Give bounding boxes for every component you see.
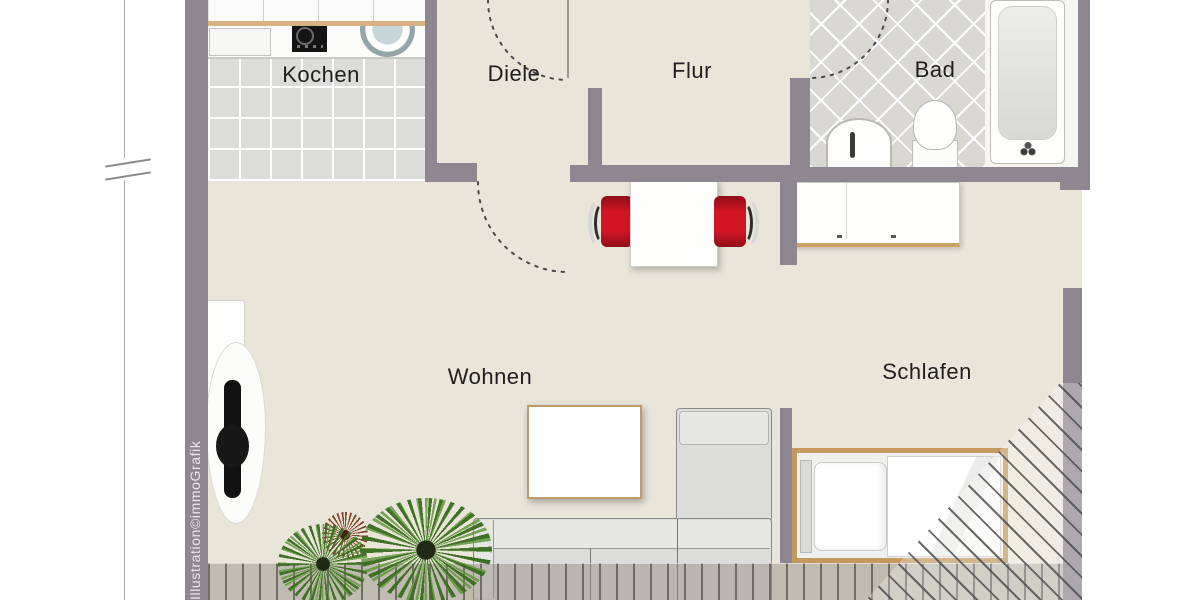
wardrobe-handle-2	[891, 235, 896, 238]
wall-bath-corner	[1060, 167, 1082, 190]
label-bad: Bad	[915, 57, 956, 83]
entrance-door-leaf	[567, 0, 569, 78]
cooktop-burner	[296, 27, 314, 45]
dining-chair-left	[588, 196, 633, 248]
toilet-bowl	[913, 100, 957, 150]
bathtub-faucet	[1018, 142, 1038, 156]
coffee-table	[527, 405, 642, 499]
sofa-chaise	[676, 408, 772, 522]
label-flur: Flur	[672, 58, 712, 84]
kitchen-cabinets-row	[208, 0, 426, 22]
watermark-text: Illustration©immoGrafik	[187, 441, 203, 600]
wall-living-north-left	[425, 163, 477, 182]
label-wohnen: Wohnen	[448, 364, 533, 390]
wall-diele-flur-divider	[588, 88, 602, 167]
dishwasher	[209, 28, 271, 56]
wardrobe-handle-1	[837, 235, 842, 238]
plant-small	[278, 524, 368, 600]
dining-table	[630, 179, 718, 267]
dining-chair-right	[714, 196, 759, 248]
wall-bedroom-west-upper	[780, 182, 797, 265]
bed-blanket	[887, 456, 1001, 557]
bathtub-basin	[998, 6, 1057, 140]
floor-plan: Kochen Diele Flur Bad Wohnen Schlafen Il…	[0, 0, 1200, 600]
wall-right-outer-top	[1078, 0, 1090, 190]
bed	[792, 448, 1008, 563]
bed-headboard	[800, 460, 812, 553]
tv-base	[216, 424, 249, 468]
wall-bath-left	[790, 78, 810, 167]
label-kochen: Kochen	[282, 62, 360, 88]
wardrobe	[790, 182, 960, 247]
wall-bedroom-west-lower	[780, 408, 792, 563]
wardrobe-divider	[846, 183, 847, 239]
wall-kitchen-right	[425, 0, 437, 170]
washbasin	[826, 118, 892, 168]
wall-bath-bottom	[790, 167, 1082, 182]
cooktop-knobs	[297, 45, 323, 48]
washbasin-faucet	[850, 132, 855, 158]
reference-line	[124, 0, 125, 600]
label-schlafen: Schlafen	[882, 359, 972, 385]
wall-hall-bottom	[570, 165, 797, 182]
kitchen-counter-edge	[208, 21, 425, 26]
sofa-backrest	[494, 520, 770, 549]
chair-seat-red	[714, 196, 746, 247]
sofa-chaise-back	[679, 411, 769, 445]
chair-seat-red	[601, 196, 633, 247]
plant-large	[360, 498, 492, 600]
bed-pillow	[814, 462, 887, 551]
wall-right-outer-bottom	[1063, 288, 1082, 600]
label-diele: Diele	[488, 61, 541, 87]
